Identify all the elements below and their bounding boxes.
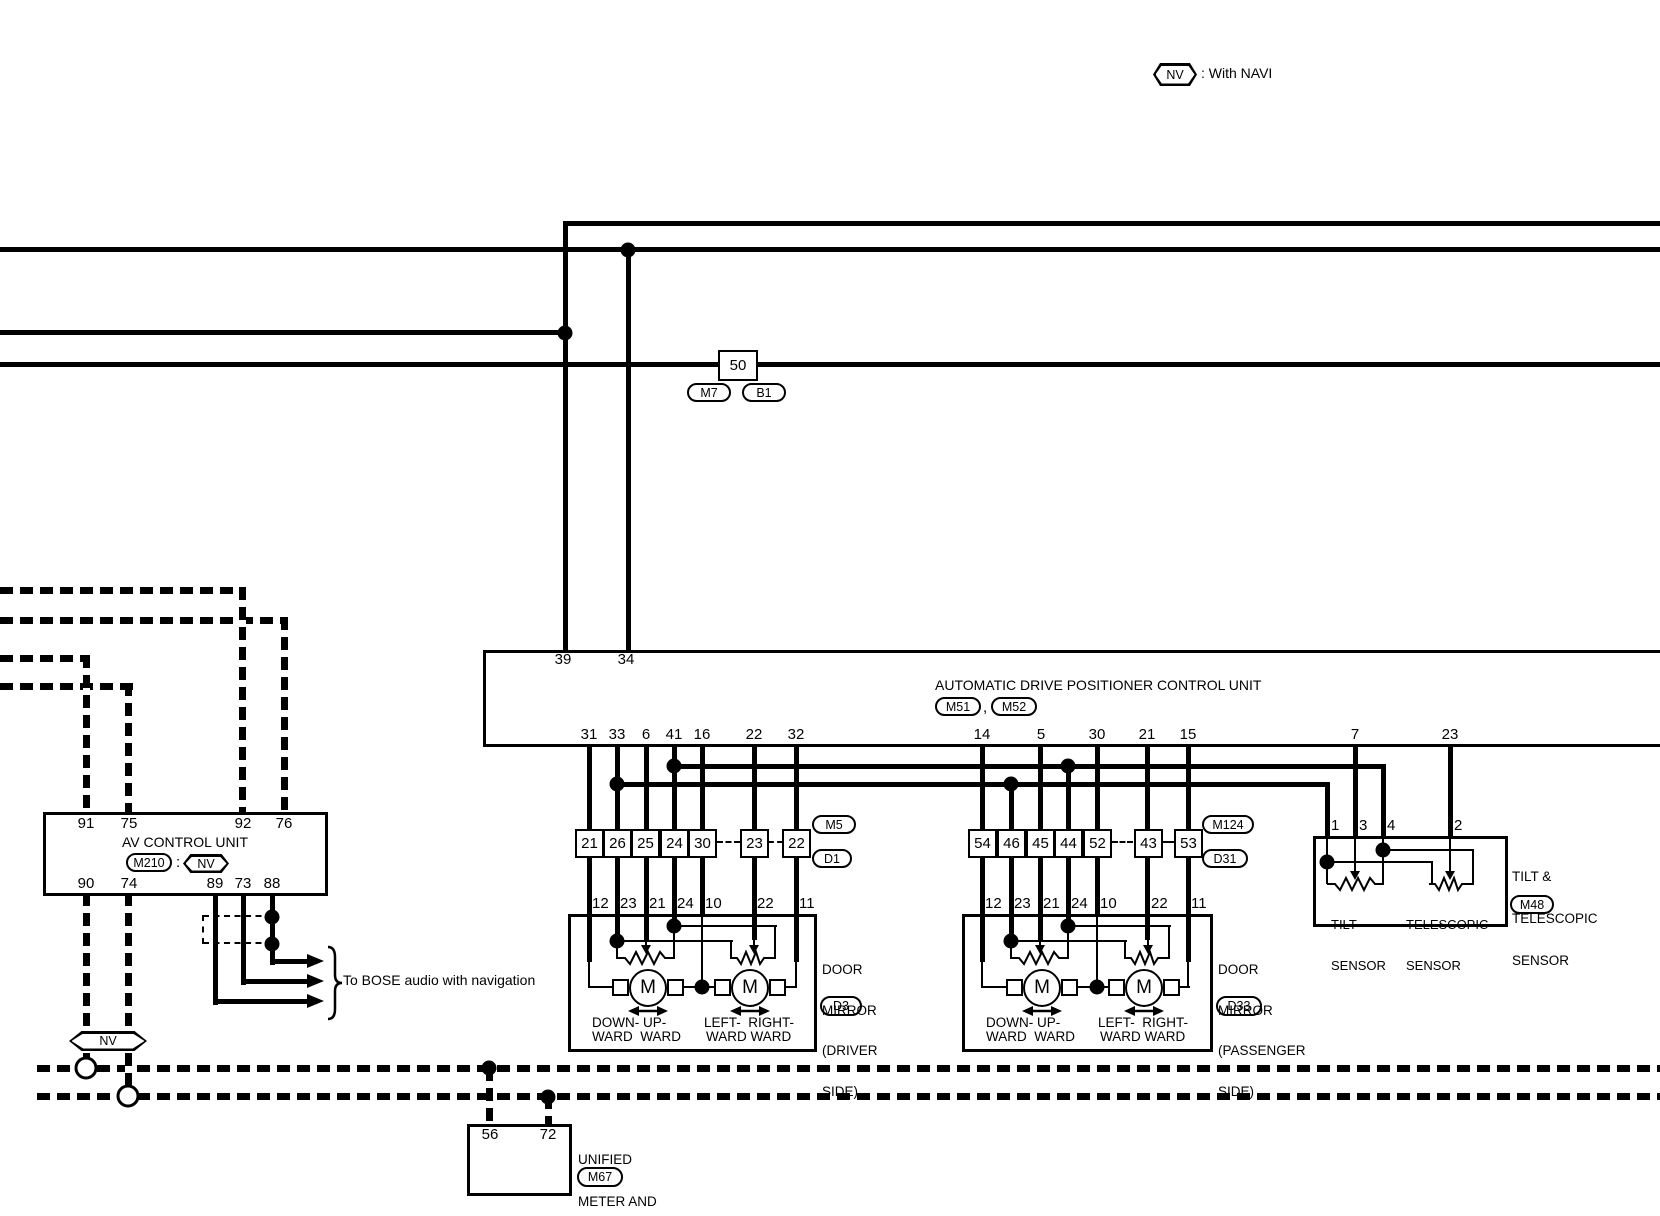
av-pin-label: 73 <box>235 876 252 892</box>
nv-label: NV <box>197 857 214 871</box>
pin-square: 21 <box>575 829 604 858</box>
pin-number: 21 <box>581 835 598 852</box>
av-pin-label: 90 <box>78 876 95 892</box>
tilt-sensor-pot-symbol <box>1327 878 1384 890</box>
name-line: MIRROR <box>822 1004 878 1018</box>
mirror-pin-label: 10 <box>1100 896 1117 912</box>
sensor-pin-label: 1 <box>1331 818 1339 834</box>
junction-dot <box>558 326 573 341</box>
wiper-arrow-icon <box>749 937 759 954</box>
motor-direction-label: DOWN- UP- <box>986 1016 1060 1030</box>
adp-pin-label: 16 <box>694 727 711 743</box>
pin-number: 44 <box>1060 835 1077 852</box>
wiper-arrow-icon <box>1143 937 1153 954</box>
pin-square: 45 <box>1026 829 1055 858</box>
name-line: TILT <box>1331 918 1386 932</box>
telescopic-sensor-pot-symbol <box>1429 878 1473 890</box>
motor-symbol: M <box>629 969 667 1007</box>
d1-label: D1 <box>824 852 840 866</box>
d31-label: D31 <box>1214 852 1237 866</box>
mirror-pin-label: 21 <box>649 896 666 912</box>
adp-pin-label: 7 <box>1351 727 1359 743</box>
bose-note: To BOSE audio with navigation <box>343 973 535 988</box>
motor-symbol: M <box>1023 969 1061 1007</box>
m210-label: M210 <box>133 856 164 870</box>
name-line: SENSOR <box>1331 959 1386 973</box>
bottom-navi-badge: NV <box>69 1031 147 1051</box>
adp-pin-label: 33 <box>609 727 626 743</box>
junction-dot <box>667 919 682 934</box>
adp-pin-label: 15 <box>1180 727 1197 743</box>
mirror-pin-label: 22 <box>757 896 774 912</box>
motor-direction-label: LEFT- RIGHT- <box>704 1016 794 1030</box>
navi-badge-label: NV <box>1166 68 1183 82</box>
m7-label: M7 <box>700 386 717 400</box>
av-pin-label: 89 <box>207 876 224 892</box>
motor-direction-label: DOWN- UP- <box>592 1016 666 1030</box>
arrowhead-icon <box>307 954 324 968</box>
junction-dot <box>1320 855 1335 870</box>
av-pin-label: 91 <box>78 816 95 832</box>
junction-dot <box>610 934 625 949</box>
pin-square: 54 <box>968 829 997 858</box>
arrowhead-icon <box>307 994 324 1008</box>
connector-oval-m7: M7 <box>687 383 731 402</box>
name-line: (PASSENGER <box>1218 1044 1306 1058</box>
av-pin-label: 92 <box>235 816 252 832</box>
adp-pin-label: 31 <box>581 727 598 743</box>
pin-number: 23 <box>746 835 763 852</box>
pin-number: 54 <box>974 835 991 852</box>
mirror-pin-label: 23 <box>620 896 637 912</box>
junction-dot <box>1061 919 1076 934</box>
meter-pin-label: 72 <box>540 1127 557 1143</box>
telescopic-sensor-label: TELESCOPIC SENSOR <box>1406 891 1488 999</box>
tilt-sensor-label: TILT SENSOR <box>1331 891 1386 999</box>
pin-square: 30 <box>688 829 717 858</box>
adp-pin-label: 14 <box>974 727 991 743</box>
driver-mirror-name: DOOR MIRROR (DRIVER SIDE) <box>822 936 878 1125</box>
motor-label: M <box>742 977 758 999</box>
adp-pin-label: 23 <box>1442 727 1459 743</box>
navi-legend-text: : With NAVI <box>1201 66 1272 81</box>
mirror-pin-label: 11 <box>799 896 815 912</box>
pin-number: 24 <box>666 835 683 852</box>
pin-square: 52 <box>1083 829 1112 858</box>
junction-dot <box>695 980 710 995</box>
junction-dot <box>1376 843 1391 858</box>
mirror-pin-label: 23 <box>1014 896 1031 912</box>
passenger-mirror-name: DOOR MIRROR (PASSENGER SIDE) <box>1218 936 1306 1125</box>
name-line: (DRIVER <box>822 1044 878 1058</box>
tilt-pot-symbol <box>617 952 674 964</box>
wiring-diagram-canvas: NV : With NAVI 50 M7 B1 39 34 AUTOMATIC … <box>0 0 1660 1216</box>
meter-pin-label: 56 <box>482 1127 499 1143</box>
av-pin-label: 75 <box>121 816 138 832</box>
splice-circle <box>117 1085 140 1108</box>
mirror-pin-label: 21 <box>1043 896 1060 912</box>
connector-50-label: 50 <box>730 357 747 374</box>
mirror-pin-label: 11 <box>1191 896 1207 912</box>
pin-square: 24 <box>660 829 689 858</box>
pin-number: 43 <box>1140 835 1157 852</box>
pin-number: 22 <box>788 835 805 852</box>
motor-direction-label: LEFT- RIGHT- <box>1098 1016 1188 1030</box>
name-line: UNIFIED <box>578 1153 657 1167</box>
nv-label: NV <box>99 1034 116 1048</box>
mirror-pin-label: 12 <box>592 896 609 912</box>
m51-label: M51 <box>946 700 970 714</box>
m52-label: M52 <box>1002 700 1026 714</box>
name-line: MIRROR <box>1218 1004 1306 1018</box>
unified-meter-name: UNIFIED METER AND A/C AMP. <box>578 1125 657 1216</box>
sensor-pin-label: 4 <box>1387 818 1395 834</box>
name-line: SENSOR <box>1512 954 1598 968</box>
motor-label: M <box>640 977 656 999</box>
junction-dot <box>541 1090 556 1105</box>
colon: : <box>176 855 180 871</box>
brace-icon <box>328 947 342 1019</box>
splice-circle <box>75 1057 98 1080</box>
av-title: AV CONTROL UNIT <box>122 835 248 850</box>
comma: , <box>983 700 987 716</box>
pin-square: 43 <box>1134 829 1163 858</box>
sensor-name: TILT & TELESCOPIC SENSOR <box>1512 842 1598 996</box>
mirror-pin-label: 12 <box>985 896 1002 912</box>
m124-label: M124 <box>1212 818 1243 832</box>
pin-square: 46 <box>997 829 1026 858</box>
pin-square: 22 <box>782 829 811 858</box>
name-line: METER AND <box>578 1195 657 1209</box>
av-pin-label: 76 <box>276 816 293 832</box>
pin-square: 23 <box>740 829 769 858</box>
connector-oval-m5: M5 <box>812 815 856 834</box>
connector-oval-d1: D1 <box>812 849 852 868</box>
pin-number: 45 <box>1032 835 1049 852</box>
motor-direction-label: WARD WARD <box>706 1030 791 1044</box>
sensor-pin-label: 3 <box>1359 818 1367 834</box>
adp-pin-label: 41 <box>666 727 683 743</box>
b1-label: B1 <box>756 386 771 400</box>
wiper-arrow-icon <box>641 937 651 954</box>
adp-pin-label: 5 <box>1037 727 1045 743</box>
motor-symbol: M <box>731 969 769 1007</box>
mirror-pin-label: 24 <box>677 896 694 912</box>
navi-legend-badge: NV <box>1153 63 1197 86</box>
adp-title: AUTOMATIC DRIVE POSITIONER CONTROL UNIT <box>935 678 1261 693</box>
pin-square: 25 <box>631 829 660 858</box>
junction-dot <box>1004 934 1019 949</box>
motor-label: M <box>1034 977 1050 999</box>
pin-number: 26 <box>609 835 626 852</box>
mirror-pin-label: 10 <box>705 896 722 912</box>
junction-dot <box>1090 980 1105 995</box>
mirror-pin-label: 24 <box>1071 896 1088 912</box>
junction-dot <box>610 777 625 792</box>
connector-oval-m51: M51 <box>935 697 981 716</box>
adp-pin-label: 21 <box>1139 727 1156 743</box>
wiper-arrow-icon <box>1035 937 1045 954</box>
adp-pin-label: 32 <box>788 727 805 743</box>
av-navi-badge: NV <box>183 854 229 873</box>
adp-pin-label: 39 <box>555 652 572 668</box>
name-line: TILT & <box>1512 870 1598 884</box>
junction-dot <box>265 910 280 925</box>
connector-oval-d31: D31 <box>1202 849 1248 868</box>
adp-pin-label: 30 <box>1089 727 1106 743</box>
adp-pin-label: 22 <box>746 727 763 743</box>
name-line: TELESCOPIC <box>1512 912 1598 926</box>
av-pin-label: 74 <box>121 876 138 892</box>
name-line: SIDE) <box>1218 1085 1306 1099</box>
mirror-pin-label: 22 <box>1151 896 1168 912</box>
pin-number: 52 <box>1089 835 1106 852</box>
connector-oval-m52: M52 <box>991 697 1037 716</box>
junction-dot <box>621 243 636 258</box>
junction-dot <box>1061 759 1076 774</box>
name-line: DOOR <box>822 963 878 977</box>
name-line: TELESCOPIC <box>1406 918 1488 932</box>
junction-dot <box>1004 777 1019 792</box>
motor-direction-label: WARD WARD <box>592 1030 681 1044</box>
av-pin-label: 88 <box>264 876 281 892</box>
pin-square: 44 <box>1054 829 1083 858</box>
adp-pin-label: 34 <box>618 652 635 668</box>
pin-square: 53 <box>1174 829 1203 858</box>
motor-direction-label: WARD WARD <box>986 1030 1075 1044</box>
pin-number: 53 <box>1180 835 1197 852</box>
swivel-pot-symbol <box>1125 952 1169 964</box>
sensor-pin-label: 2 <box>1454 818 1462 834</box>
pin-number: 30 <box>694 835 711 852</box>
name-line: SENSOR <box>1406 959 1488 973</box>
name-line: DOOR <box>1218 963 1306 977</box>
junction-dot <box>482 1061 497 1076</box>
motor-symbol: M <box>1125 969 1163 1007</box>
motor-label: M <box>1136 977 1152 999</box>
connector-50-square: 50 <box>718 350 758 381</box>
junction-dot <box>667 759 682 774</box>
connector-oval-m124: M124 <box>1202 815 1254 834</box>
pin-number: 46 <box>1003 835 1020 852</box>
adp-pin-label: 6 <box>642 727 650 743</box>
arrowhead-icon <box>307 974 324 988</box>
motor-direction-label: WARD WARD <box>1100 1030 1185 1044</box>
junction-dot <box>265 937 280 952</box>
pin-square: 26 <box>603 829 632 858</box>
connector-oval-m210: M210 <box>126 853 172 872</box>
m5-label: M5 <box>825 818 842 832</box>
pin-number: 25 <box>637 835 654 852</box>
name-line: SIDE) <box>822 1085 878 1099</box>
swivel-pot-symbol <box>731 952 775 964</box>
connector-oval-b1: B1 <box>742 383 786 402</box>
tilt-pot-symbol <box>1011 952 1068 964</box>
